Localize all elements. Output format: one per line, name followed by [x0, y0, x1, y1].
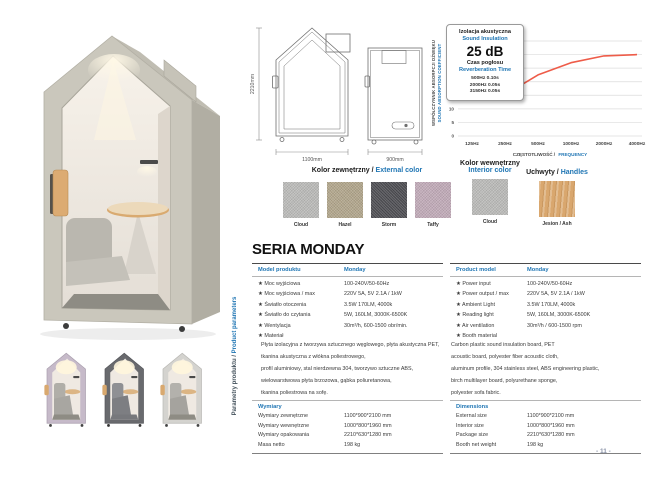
page-title: SERIA MONDAY [252, 241, 364, 258]
material-line: Carbon plastic sound insulation board, P… [450, 341, 641, 353]
swatch-taffy: Taffy [415, 182, 451, 228]
handles-title: Uchwyty / Handles [524, 169, 590, 176]
door-handle-wood [53, 170, 68, 216]
table-row: Wymiary opakowania2210*630*1280 mm [252, 431, 443, 440]
insulation-title-en: Sound Insulation [448, 36, 522, 43]
table-row: ★ Moc wyjściowa / max220V 5A, 5V 2.1A / … [252, 289, 443, 299]
caster-left [63, 323, 69, 329]
svg-text:0: 0 [451, 134, 454, 139]
table-row: Booth net weight198 kg [450, 441, 641, 450]
material-line: profil aluminiowy, stal nierdzewna 304, … [252, 365, 443, 377]
external-swatches: Cloud Hazel Storm Taffy [277, 182, 457, 228]
table-header-row: Product model Monday [450, 264, 641, 276]
swatch-color-taffy [415, 182, 451, 218]
x-axis-label: CZĘSTOTLIWOŚĆ / FREQUENCY [513, 150, 587, 157]
mini-booth-taffy [40, 346, 96, 434]
table-row: Masa netto198 kg [252, 441, 443, 450]
dimensions-body: Wymiary zewnętrzne1100*900*2100 mm Wymia… [252, 412, 443, 450]
table-row: ★ Moc wyjściowa100-240V/50-60Hz [252, 279, 443, 289]
reading-lamp-glow [137, 166, 157, 178]
dimensions-body: External size1100*900*2100 mm Interior s… [450, 412, 641, 450]
table-row: ★ Ambient Light3.5W 170LM, 4000k [450, 300, 641, 310]
caster-right [179, 326, 185, 332]
mini-booth-storm [98, 346, 154, 434]
handles-group: Uchwyty / Handles Jesion / Ash [524, 169, 590, 227]
swatch-color-hazel [327, 182, 363, 218]
table-rule [252, 453, 443, 454]
svg-text:5: 5 [451, 120, 454, 125]
swatch-color-cloud [283, 182, 319, 218]
reverb-title-pl: Czas pogłosu [448, 60, 522, 67]
material-line: acoustic board, polyester fiber acoustic… [450, 353, 641, 365]
insulation-title-pl: Izolacja akustyczna [448, 29, 522, 36]
svg-text:2000Hz: 2000Hz [596, 141, 613, 147]
swatch-interior-cloud: Cloud [472, 179, 508, 225]
interior-color-group: Kolor wewnętrzny Interior color Cloud [458, 160, 522, 225]
table-row: Interior size1000*800*1960 mm [450, 422, 641, 431]
swatch-hazel: Hazel [327, 182, 363, 228]
svg-text:250Hz: 250Hz [498, 141, 512, 147]
swatch-ash: Jesion / Ash [539, 181, 575, 227]
reverb-row: 3150Hz 0.05s [448, 89, 522, 96]
table-row: Wymiary wewnętrzne1000*800*1960 mm [252, 422, 443, 431]
swatch-color-ash [539, 181, 575, 217]
reverb-values: 500Hz 0.10s 2000Hz 0.05s 3150Hz 0.05s [448, 76, 522, 96]
table-row: ★ Światło otoczenia3.5W 170LM, 4000k [252, 300, 443, 310]
table-row: ★ Reading light5W, 160LM, 3000K-6500K [450, 310, 641, 320]
svg-text:500Hz: 500Hz [531, 141, 545, 147]
page-number: - 11 - [596, 448, 611, 455]
reverb-row: 500Hz 0.10s [448, 76, 522, 83]
booth-side-panel [192, 100, 220, 324]
interior-color-title-pl: Kolor wewnętrzny [458, 160, 522, 167]
spec-table-polish: Model produktu Monday ★ Moc wyjściowa100… [252, 263, 443, 454]
side-view-drawing [365, 48, 422, 144]
handles-swatches: Jesion / Ash [524, 181, 590, 227]
table-row: ★ Air ventilation30m³/h / 600-1500 rpm [450, 321, 641, 331]
table-header-row: Model produktu Monday [252, 264, 443, 276]
swatch-color-interior-cloud [472, 179, 508, 215]
table-rule [450, 453, 641, 454]
table-row: Package size2210*630*1280 mm [450, 431, 641, 440]
table-row: ★ Booth material [450, 331, 641, 341]
table-top [108, 202, 168, 215]
sound-insulation-info-box: Izolacja akustyczna Sound Insulation 25 … [446, 24, 524, 101]
material-line: wielowarstwowa płyta brzozowa, gąbka pol… [252, 377, 443, 389]
table-row: ★ Materiał [252, 331, 443, 341]
table-row: ★ Światło do czytania5W, 160LM, 3000K-65… [252, 310, 443, 320]
floor [62, 294, 170, 310]
dimension-front-width-label: 1100mm [302, 157, 322, 163]
table-row: ★ Power output / max220V 5A, 5V 2.1A / 1… [450, 289, 641, 299]
mini-booth-cloud [156, 346, 212, 434]
front-view-drawing [273, 28, 351, 142]
technical-drawings: 2210mm 1100mm 900mm [246, 18, 426, 170]
material-line: tkanina poliestrowa na sofę. [252, 389, 443, 401]
dimension-side-width-label: 900mm [386, 157, 403, 163]
dimensions-section-header: Wymiary [252, 401, 443, 412]
svg-text:125Hz: 125Hz [465, 141, 479, 147]
booth-shadow [40, 328, 216, 340]
swatch-storm: Storm [371, 182, 407, 228]
material-line: birch multilayer board, polyurethane spo… [450, 377, 641, 389]
insulation-value: 25 dB [448, 44, 522, 59]
booth-render-main [16, 12, 236, 342]
material-line: tkanina akustyczna z włókna poliestroweg… [252, 353, 443, 365]
mini-booths-row [40, 346, 220, 436]
table-row: External size1100*900*2100 mm [450, 412, 641, 421]
reverb-title-en: Reverberation Time [448, 67, 522, 74]
interior-color-title-en: Interior color [458, 167, 522, 174]
svg-text:4000Hz: 4000Hz [629, 141, 646, 147]
catalog-page: 2210mm 1100mm 900mm 05101520253035125Hz2… [0, 0, 648, 486]
external-color-title: Kolor zewnętrzny / External color [277, 167, 457, 174]
table-body: ★ Moc wyjściowa100-240V/50-60Hz ★ Moc wy… [252, 277, 443, 400]
y-axis-label-en: SOUND ABSORPTION COEFFICIENT [437, 43, 442, 122]
swatch-color-storm [371, 182, 407, 218]
section-vertical-label: Parametry produktu / Product parameters [232, 267, 243, 445]
external-color-group: Kolor zewnętrzny / External color Cloud … [277, 167, 457, 228]
svg-text:10: 10 [449, 107, 455, 112]
swatch-cloud: Cloud [283, 182, 319, 228]
svg-text:1000Hz: 1000Hz [563, 141, 580, 147]
material-line: polyester sofa fabric. [450, 389, 641, 401]
acoustic-chart: 05101520253035125Hz250Hz500Hz1000Hz2000H… [428, 16, 648, 166]
spec-table-english: Product model Monday ★ Power input100-24… [450, 263, 641, 454]
y-axis-label-pl: WSPÓŁCZYNNIK ABSORPCJI DŹWIĘKU [431, 40, 436, 126]
material-line: aluminum profile, 304 stainless steel, A… [450, 365, 641, 377]
reading-lamp [140, 160, 158, 164]
table-row: ★ Wentylacja30m³/h, 600-1500 obr/min. [252, 321, 443, 331]
ceiling-light-glow [88, 54, 140, 86]
dimensions-section-header: Dimensions [450, 401, 641, 412]
dimension-height-label: 2210mm [250, 74, 256, 94]
table-row: Wymiary zewnętrzne1100*900*2100 mm [252, 412, 443, 421]
table-body: ★ Power input100-240V/50-60Hz ★ Power ou… [450, 277, 641, 400]
material-line: Płyta izolacyjna z tworzywa sztucznego w… [252, 341, 443, 353]
interior-swatches: Cloud [458, 179, 522, 225]
table-row: ★ Power input100-240V/50-60Hz [450, 279, 641, 289]
